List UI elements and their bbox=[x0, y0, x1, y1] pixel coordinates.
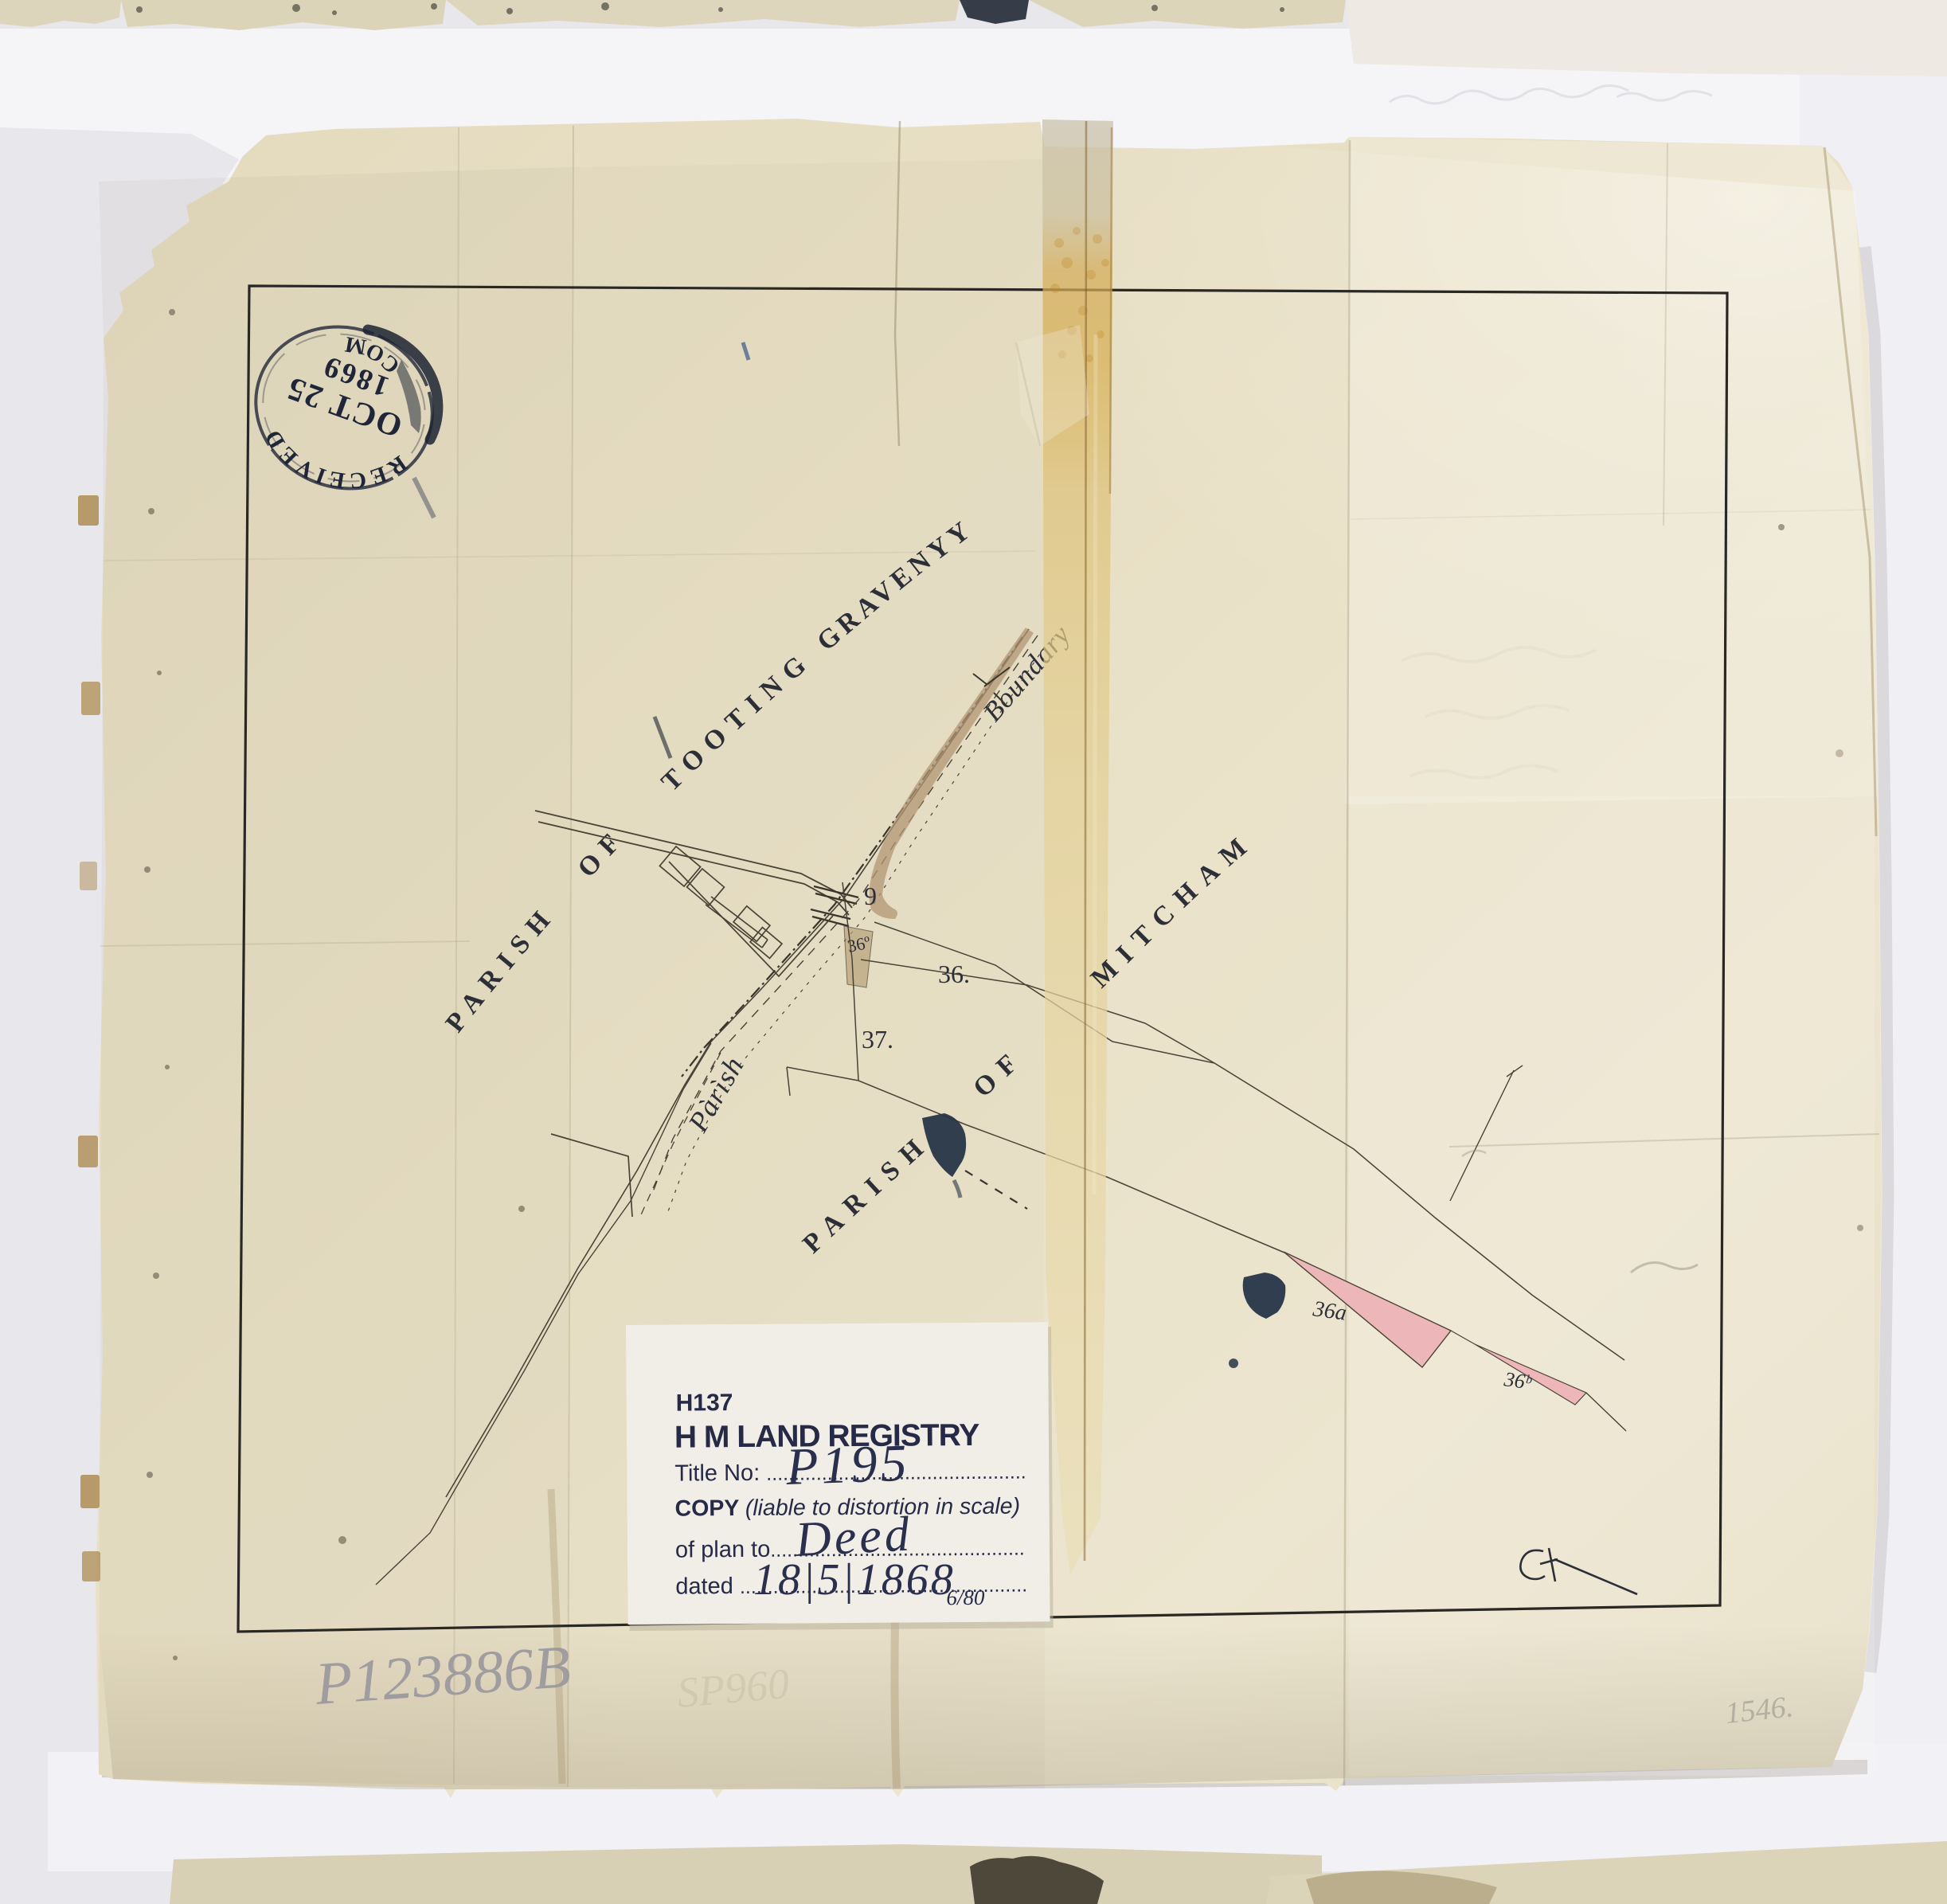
svg-text:1546.: 1546. bbox=[1724, 1690, 1795, 1730]
svg-text:P195: P195 bbox=[784, 1434, 911, 1496]
svg-text:36ᵇ: 36ᵇ bbox=[1502, 1367, 1534, 1394]
svg-text:9: 9 bbox=[864, 882, 877, 910]
svg-text:36a: 36a bbox=[1311, 1296, 1348, 1326]
svg-text:SP960: SP960 bbox=[675, 1660, 792, 1717]
svg-text:36.: 36. bbox=[938, 960, 970, 988]
svg-text:18|5|1868: 18|5|1868 bbox=[753, 1555, 956, 1605]
svg-text:37.: 37. bbox=[862, 1025, 893, 1054]
svg-text:H137: H137 bbox=[676, 1390, 733, 1416]
